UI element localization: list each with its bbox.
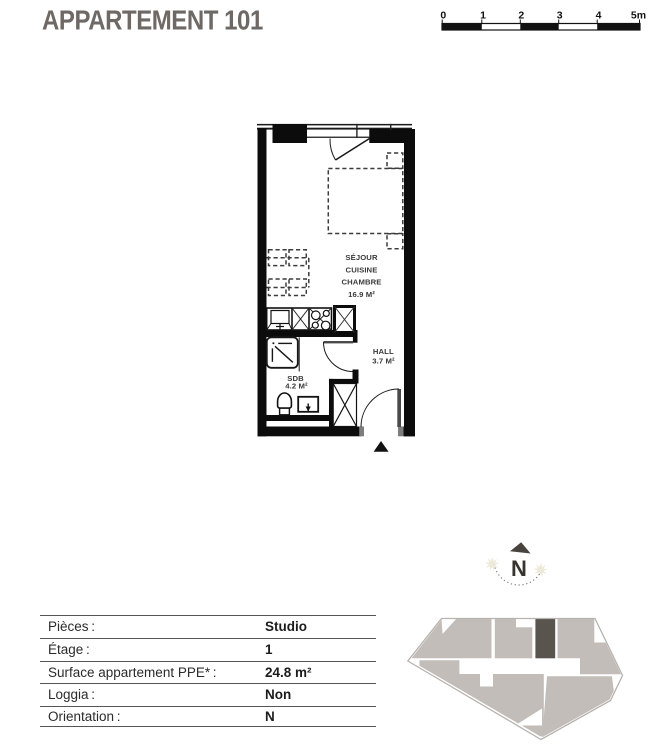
svg-text:HALL: HALL: [373, 347, 394, 356]
svg-text:SÉJOUR: SÉJOUR: [345, 253, 378, 262]
svg-text:4.2 M²: 4.2 M²: [285, 381, 308, 390]
svg-text:N: N: [511, 556, 527, 581]
svg-text:3.7 M²: 3.7 M²: [372, 357, 395, 366]
svg-text:CHAMBRE: CHAMBRE: [342, 278, 382, 287]
svg-text:16.9 M²: 16.9 M²: [348, 290, 375, 299]
svg-text:CUISINE: CUISINE: [346, 266, 378, 275]
